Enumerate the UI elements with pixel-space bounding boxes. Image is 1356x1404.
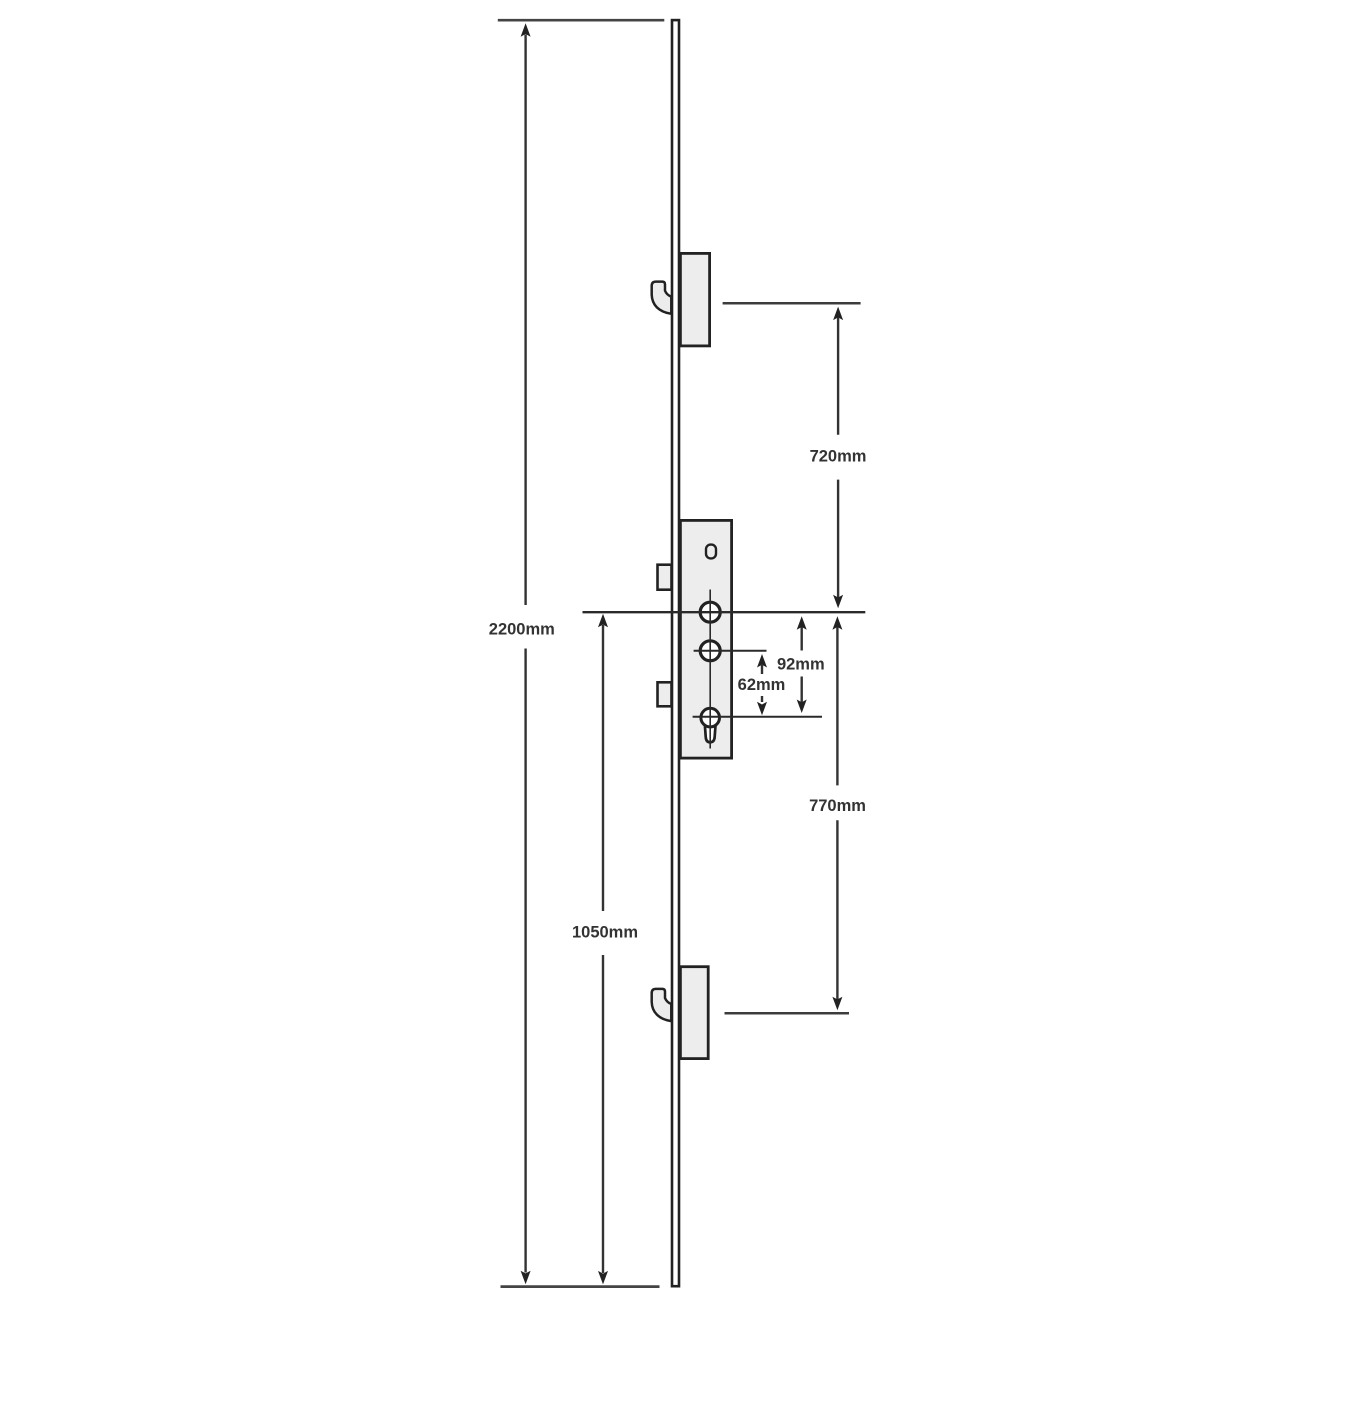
svg-text:2200mm: 2200mm (489, 621, 555, 639)
svg-text:720mm: 720mm (810, 448, 867, 466)
svg-text:770mm: 770mm (809, 797, 866, 815)
svg-text:1050mm: 1050mm (572, 924, 638, 942)
svg-text:92mm: 92mm (777, 656, 825, 674)
svg-text:62mm: 62mm (738, 676, 786, 694)
